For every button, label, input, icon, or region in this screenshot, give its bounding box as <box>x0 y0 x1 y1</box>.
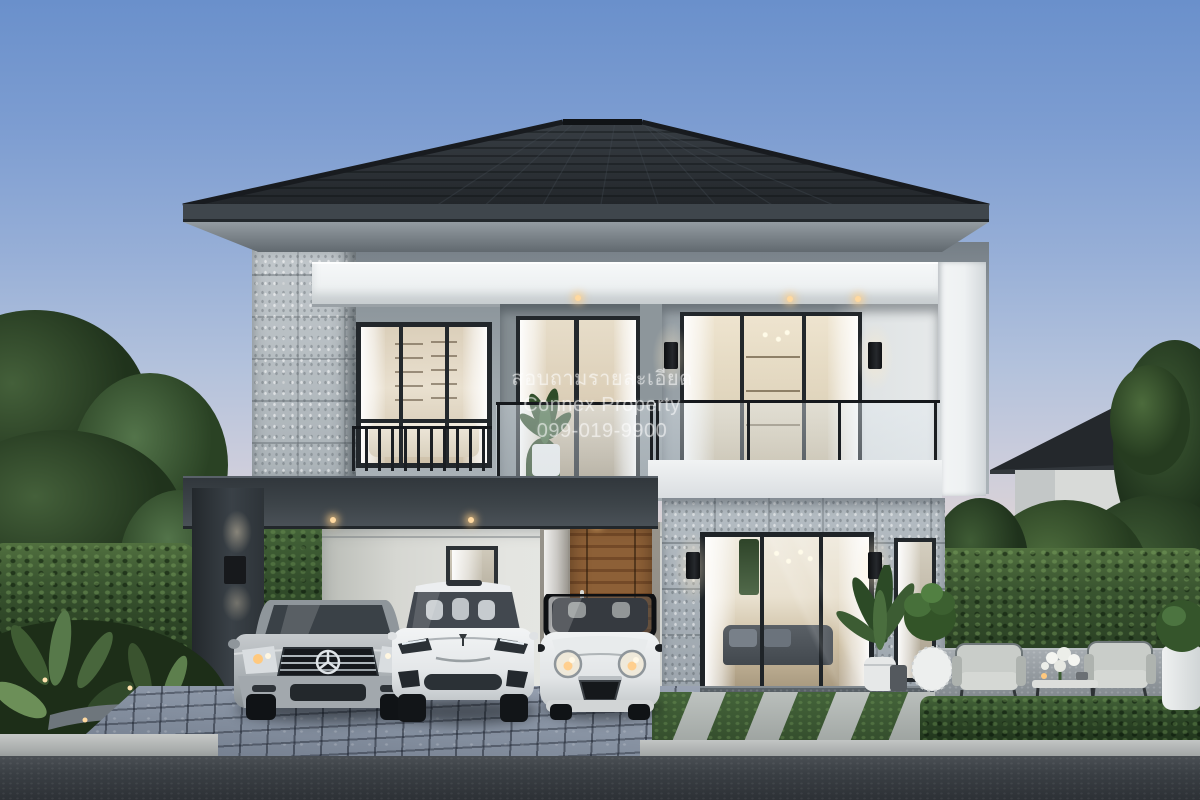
roof <box>0 0 1200 270</box>
shelf-line <box>746 356 800 358</box>
potted-plants <box>828 565 958 695</box>
recessed-ceiling-light <box>855 296 861 302</box>
wheel <box>500 694 528 722</box>
scene-root: สอบถามรายละเอียด Connex Property 099-019… <box>0 0 1200 800</box>
railing-post <box>934 403 937 467</box>
planter-shrub <box>1150 596 1200 656</box>
flower-bouquet <box>1041 647 1080 680</box>
carport-downlight <box>468 517 474 523</box>
asphalt-street <box>0 756 1200 800</box>
wheel <box>550 704 572 720</box>
wall-sconce-icon <box>868 342 882 369</box>
white-column-right <box>938 262 986 496</box>
watermark-line-3: 099-019-9900 <box>438 418 766 444</box>
wall-sconce-icon <box>686 552 700 579</box>
wheel <box>398 694 426 722</box>
side-mirror <box>228 639 240 649</box>
balcony-parapet <box>648 460 942 501</box>
car-mini <box>538 594 662 720</box>
wheel <box>628 704 650 720</box>
pillar-light-glow <box>222 510 252 554</box>
recessed-ceiling-light <box>787 296 793 302</box>
watermark-line-1: สอบถามรายละเอียด <box>438 366 766 392</box>
watermark-line-2: Connex Property <box>438 392 766 418</box>
candle-light <box>1041 673 1047 679</box>
wheel <box>246 694 276 720</box>
railing-post <box>838 403 841 467</box>
chandelier <box>752 326 796 348</box>
watermark: สอบถามรายละเอียด Connex Property 099-019… <box>438 366 766 444</box>
car-tesla <box>388 578 538 724</box>
carport-downlight <box>330 517 336 523</box>
mini-grille <box>580 681 620 700</box>
recessed-ceiling-light <box>575 295 581 301</box>
wall-sconce-icon <box>664 342 678 369</box>
table-decor <box>1076 672 1088 680</box>
